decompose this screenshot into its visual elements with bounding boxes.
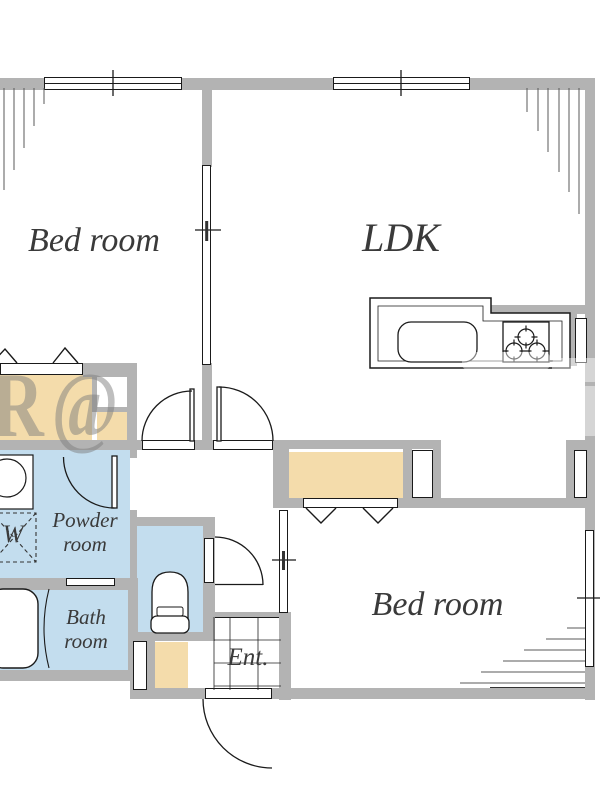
window-top-ldk [333,77,470,90]
door-leaf-bedroom1 [190,389,194,441]
closet2-triangle-2 [363,508,393,523]
closet-bottom-bedroom-fill [289,452,403,498]
room-label-bedroom-bottom: Bed room [355,586,520,624]
wall-bedroom-ldk-upper [202,90,212,167]
wall-bedroom-ldk-lower [202,363,212,445]
watermark-text: R@ [0,352,126,458]
wall-toilet-bottom [130,632,215,641]
wall-closet2-right-b [433,449,441,498]
entrance-step [133,641,147,690]
hatch-bottom-right [460,628,585,688]
wall-closet1-right [127,363,137,450]
window-top-bedroom1 [44,77,182,90]
room-label-bath-line1: Bath [42,606,130,630]
door-sill-ldk [213,440,273,450]
watermark-patch [560,386,600,436]
door-leaf-toilet-closed [204,538,214,583]
door-arc-toilet [215,537,263,585]
floor-plan: Bed room LDK Bed room Powder room Bath r… [0,0,600,800]
room-label-bedroom-top: Bed room [14,222,174,260]
wall-hall-left-upper [130,449,137,458]
wall-hall-door-post [195,440,213,450]
room-label-powder-line1: Powder [30,509,140,533]
hatch-top-left [4,88,44,190]
closet2-triangle-1 [306,508,336,523]
bath-sliding-door [66,578,115,586]
watermark-patch [462,352,550,370]
room-label-powder-line2: room [30,533,140,557]
room-label-entrance: Ent. [213,644,283,672]
burner-icon [518,329,534,345]
wall-entrance-top [203,612,283,617]
room-label-bath-line2: room [42,630,130,654]
shoe-cabinet [155,642,188,690]
door-sill-bedroom1 [142,440,195,450]
hatch-top-right [527,88,579,214]
window-closet2-side [412,450,433,498]
sliding-door-bedroom1-ldk [202,165,211,365]
burner-ticks [515,326,538,349]
room-label-bath: Bath room [42,606,130,653]
door-arc-bedroom1 [142,391,192,441]
window-ldk-nook [574,450,587,498]
wall-bottom-right [272,688,595,699]
sliding-door-hall-bedroom2 [279,510,288,613]
door-leaf-ldk [217,387,221,441]
room-label-ldk: LDK [340,216,462,261]
wall-kitchen-alcove-top [491,305,595,314]
door-opening-powder [130,458,137,510]
front-door-sill [205,688,272,699]
closet2-door-track [303,498,398,508]
door-arc-ldk [219,387,273,441]
wall-closet2-top [273,440,441,449]
wall-closet2-right-a [403,449,412,498]
window-bedroom2-right [585,530,594,667]
window-kitchen-side [575,318,587,363]
door-arc-front [203,699,272,768]
wall-bath-bottom [0,670,140,681]
washing-machine-label: W [0,521,28,549]
room-label-powder: Powder room [30,509,140,556]
toilet-room-floor [137,526,203,632]
watermark-patch [552,358,600,382]
